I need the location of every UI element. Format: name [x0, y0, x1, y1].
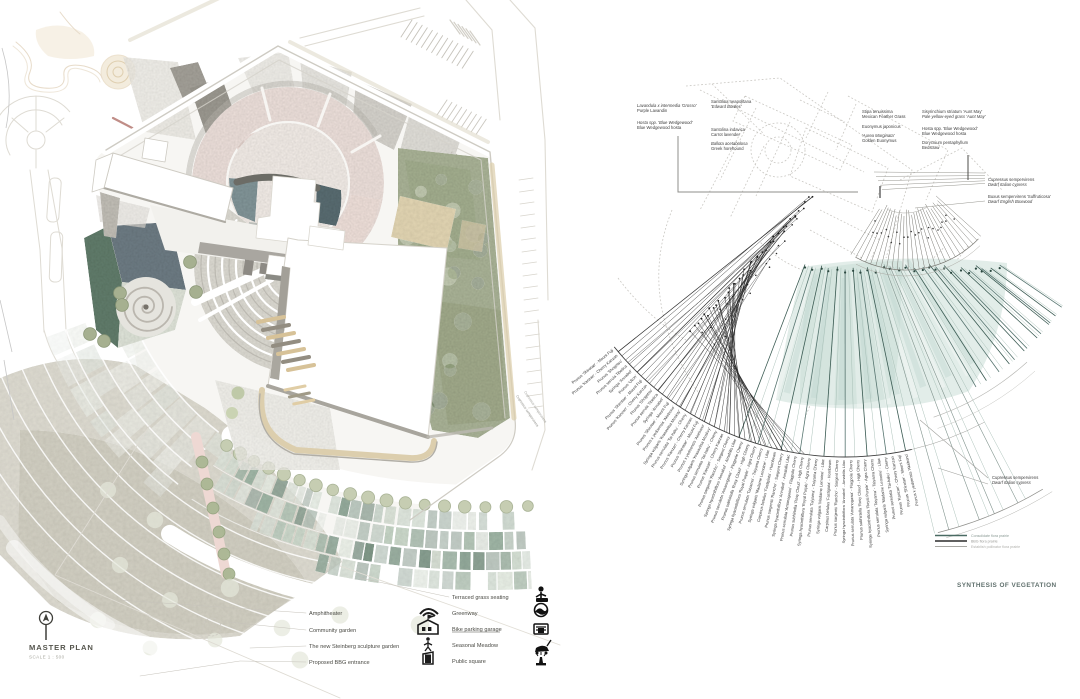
svg-text:Dwarf Italian cypress: Dwarf Italian cypress [988, 182, 1028, 187]
svg-text:Terraced grass seating: Terraced grass seating [452, 595, 509, 601]
svg-text:Amphitheater: Amphitheater [309, 611, 342, 617]
svg-text:Proposed BBG entrance: Proposed BBG entrance [309, 660, 370, 666]
svg-text:Greenway: Greenway [452, 611, 478, 617]
svg-text:Blue Wedgewood hosta: Blue Wedgewood hosta [922, 131, 967, 136]
svg-text:Community garden: Community garden [309, 628, 356, 634]
svg-text:BBG flora prairie: BBG flora prairie [971, 540, 998, 544]
svg-text:Dwarf Italian sypress: Dwarf Italian sypress [992, 480, 1032, 485]
svg-text:Dwarf English Boxwood: Dwarf English Boxwood [988, 199, 1033, 204]
svg-text:Purple Lavandin: Purple Lavandin [637, 108, 668, 113]
svg-text:Mexican Feather Grass: Mexican Feather Grass [862, 114, 906, 119]
svg-text:Public square: Public square [452, 659, 486, 665]
svg-text:Consolidate flora prairie: Consolidate flora prairie [971, 534, 1009, 538]
svg-text:Syringa hyacinthiflora 'Annabe: Syringa hyacinthiflora 'Annabel' - Amabi… [841, 460, 846, 543]
svg-text:The new Steinberg sculpture ga: The new Steinberg sculpture garden [309, 644, 399, 650]
svg-text:MASTER PLAN: MASTER PLAN [29, 643, 94, 652]
svg-text:Seasonal Meadow: Seasonal Meadow [452, 643, 499, 649]
svg-text:SYNTHESIS OF VEGETATION: SYNTHESIS OF VEGETATION [957, 582, 1057, 589]
svg-text:Euonymus japonicus: Euonymus japonicus [862, 124, 901, 129]
svg-text:SCALE 1 : 500: SCALE 1 : 500 [29, 655, 65, 660]
svg-text:Golden Euonymus: Golden Euonymus [862, 138, 896, 143]
svg-text:Carrot lavender: Carrot lavender [711, 132, 740, 137]
svg-text:Pale yellow-eyed grass 'Aunt M: Pale yellow-eyed grass 'Aunt May' [922, 114, 986, 119]
svg-text:'Edward Bowles': 'Edward Bowles' [711, 104, 742, 109]
svg-text:Establish pollinator flora pra: Establish pollinator flora prairie [971, 545, 1020, 549]
svg-text:Blue Wedgewood hosta: Blue Wedgewood hosta [637, 125, 682, 130]
svg-text:Bedstraw: Bedstraw [922, 145, 940, 150]
svg-text:Greek horehound: Greek horehound [711, 146, 744, 151]
